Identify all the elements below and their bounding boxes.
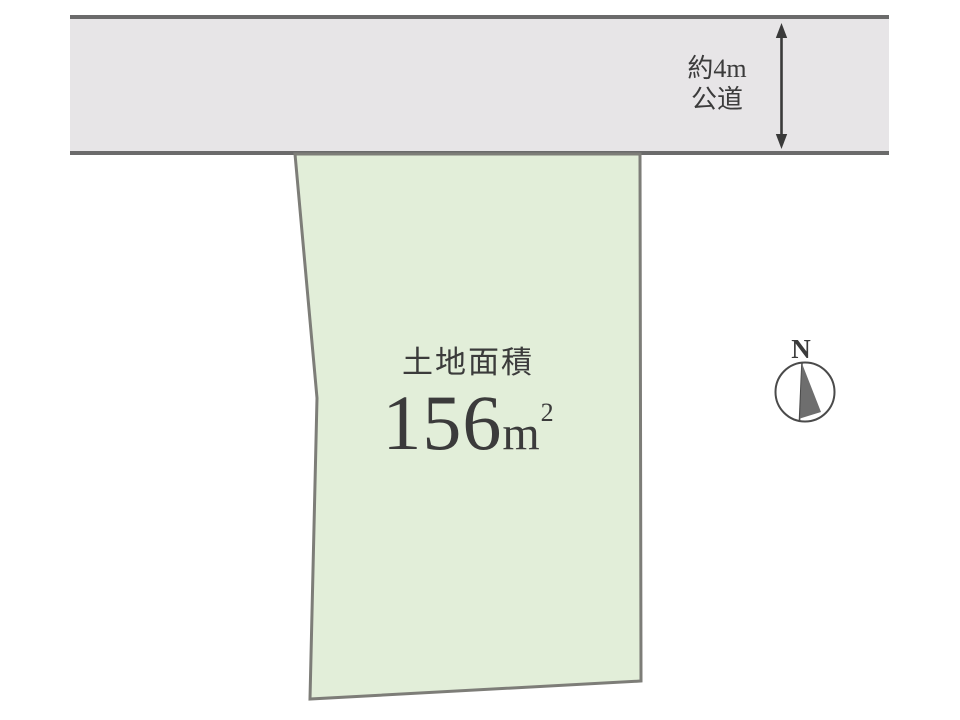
area-unit-exponent: 2: [541, 398, 554, 427]
road-width-arrow-icon: [768, 20, 798, 152]
north-label: N: [791, 334, 811, 364]
road-label: 約4m 公道: [664, 53, 770, 115]
area-unit: m: [502, 407, 539, 460]
road-type-label: 公道: [664, 84, 770, 115]
land-plot-diagram: 約4m 公道 土地面積 156m2 N: [0, 0, 960, 720]
compass: N: [764, 328, 848, 430]
arrow-head-up: [776, 23, 787, 38]
area-value-line: 156m2: [295, 384, 641, 462]
plot-area-block: 土地面積 156m2: [295, 346, 641, 462]
road-width-label: 約4m: [664, 53, 770, 84]
area-value: 156: [382, 379, 502, 466]
area-caption: 土地面積: [295, 346, 641, 380]
arrow-head-down: [776, 134, 787, 149]
